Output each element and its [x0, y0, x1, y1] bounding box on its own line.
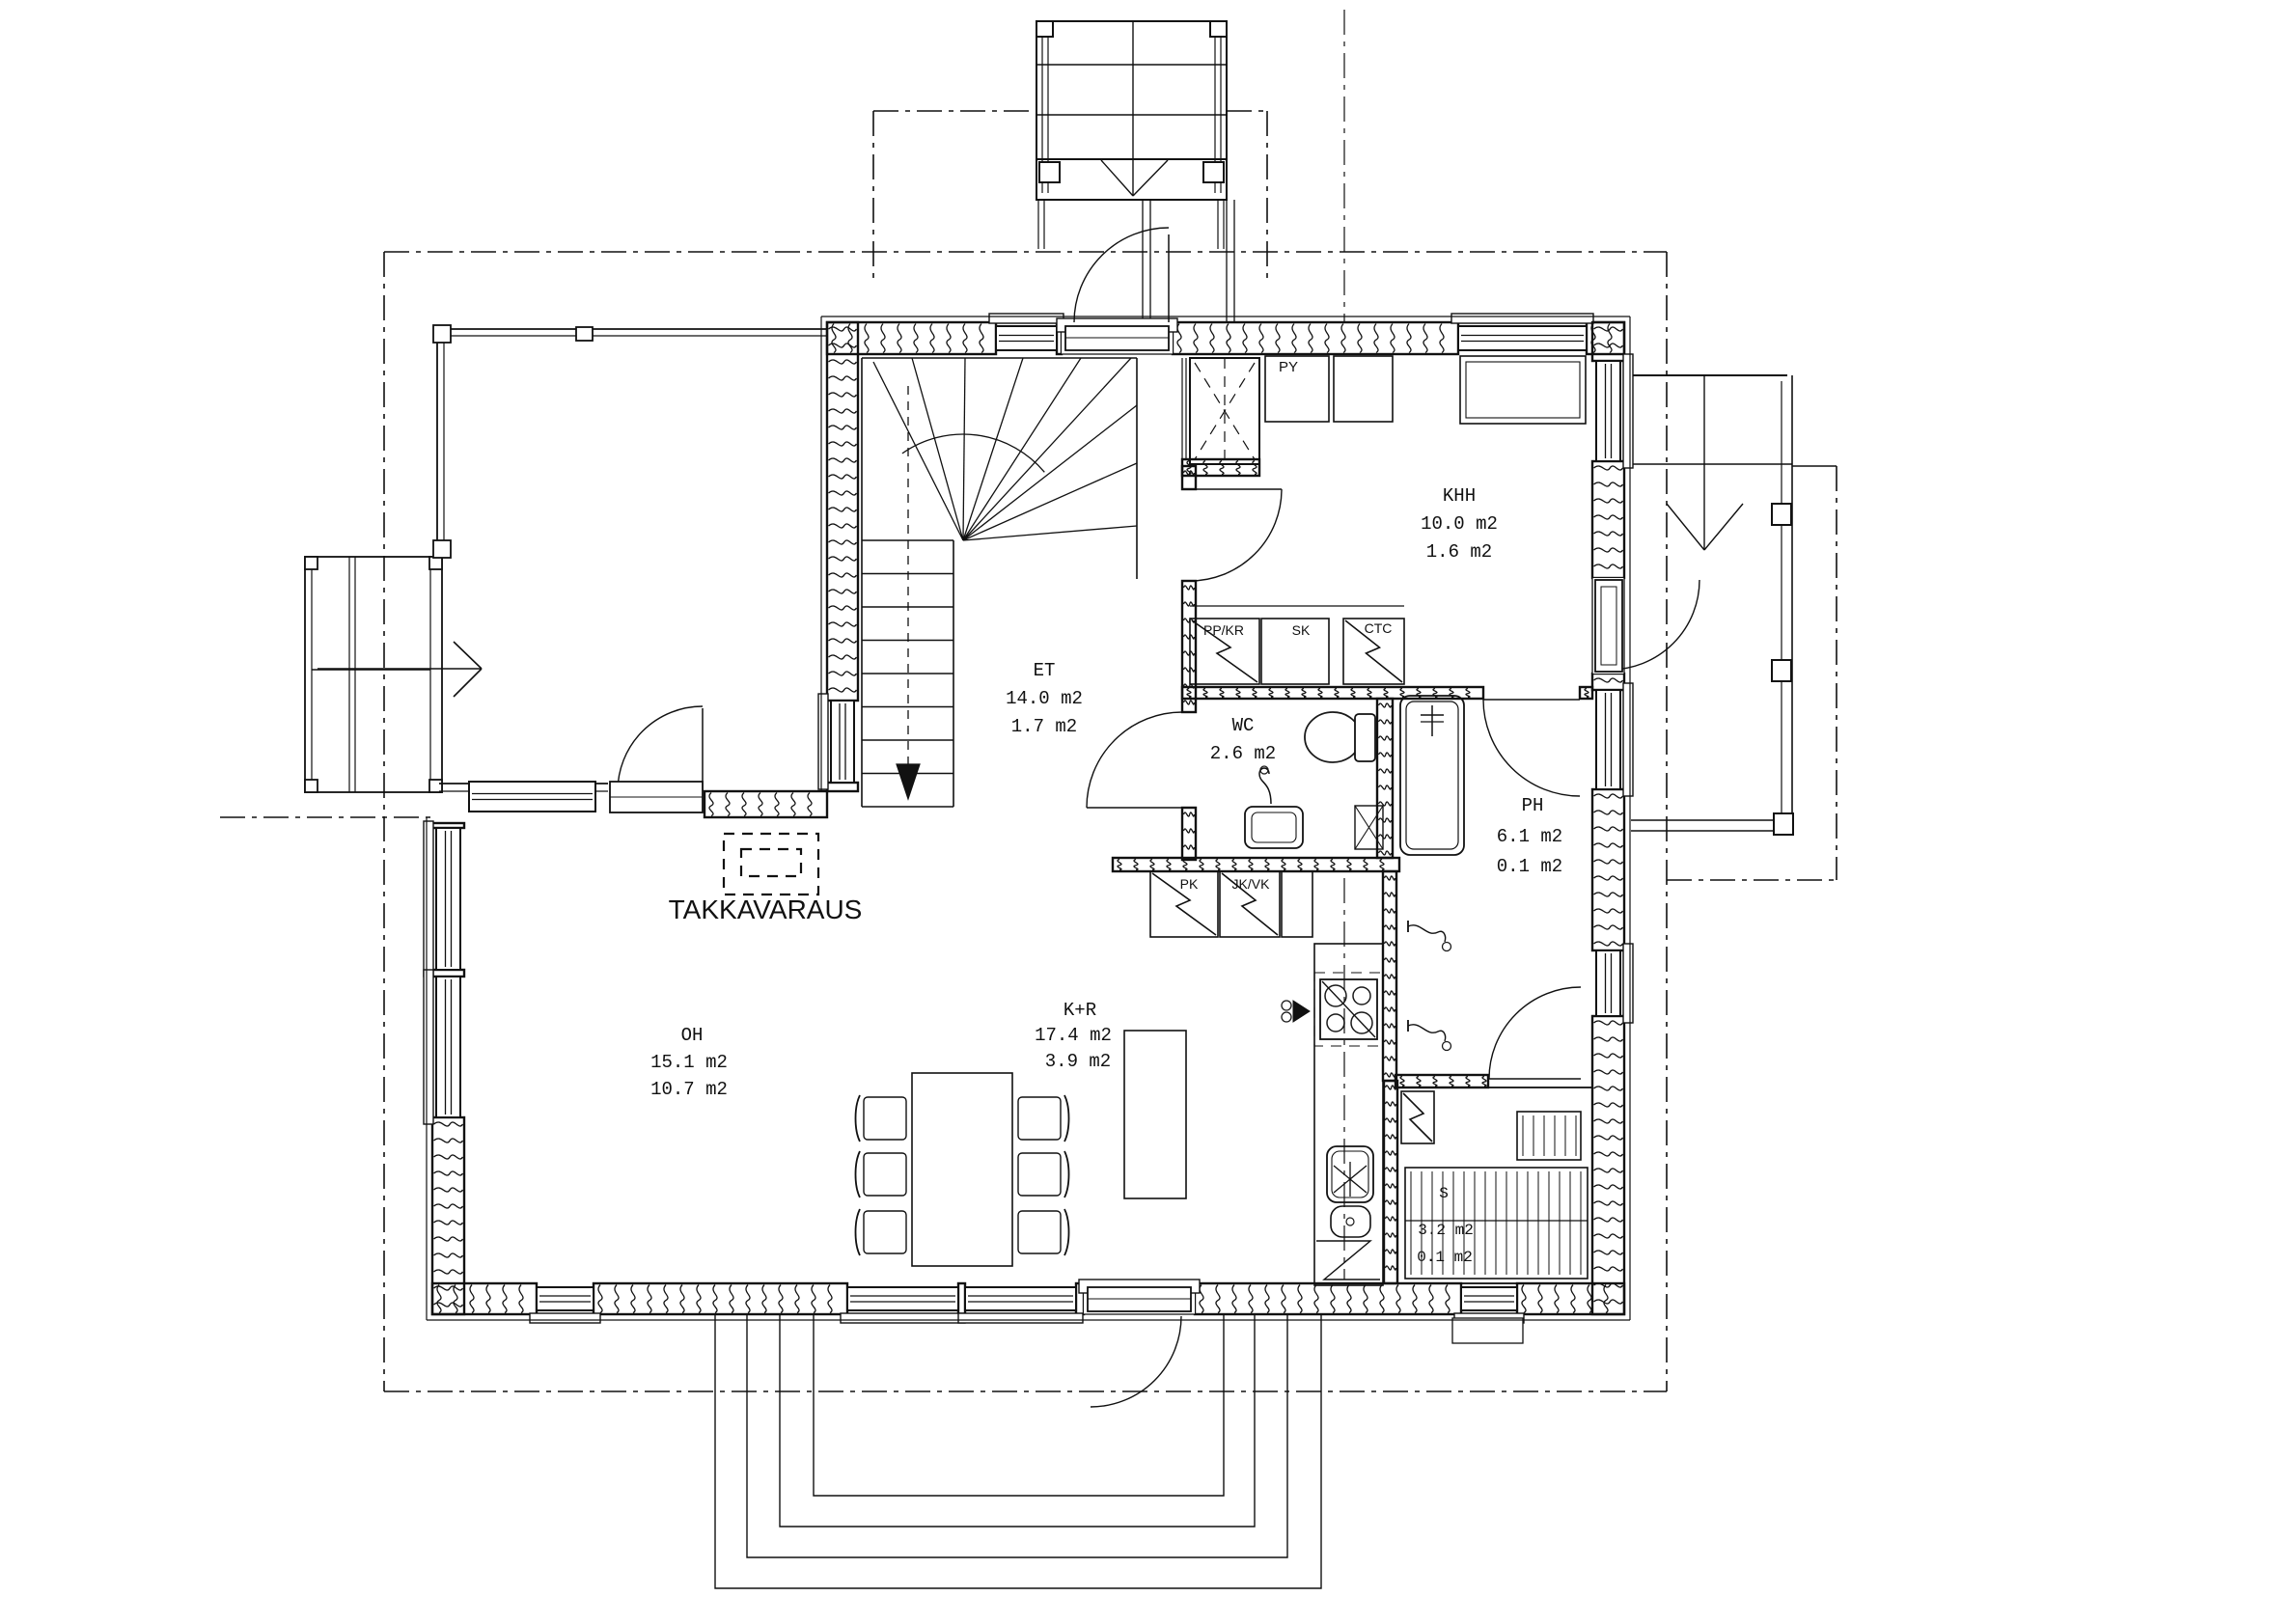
- svg-text:SK: SK: [1292, 622, 1311, 638]
- svg-text:K+R: K+R: [1064, 1000, 1096, 1021]
- svg-text:PP/KR: PP/KR: [1203, 622, 1244, 638]
- svg-text:1.7 m2: 1.7 m2: [1011, 716, 1077, 737]
- svg-text:3.9 m2: 3.9 m2: [1045, 1051, 1111, 1072]
- svg-text:KHH: KHH: [1443, 485, 1476, 507]
- svg-text:17.4 m2: 17.4 m2: [1035, 1025, 1112, 1046]
- svg-text:PH: PH: [1522, 795, 1544, 816]
- svg-text:2.6 m2: 2.6 m2: [1210, 743, 1276, 764]
- svg-text:0.1 m2: 0.1 m2: [1417, 1249, 1473, 1266]
- svg-text:JK/VK: JK/VK: [1232, 876, 1271, 892]
- svg-text:1.6 m2: 1.6 m2: [1426, 541, 1492, 563]
- svg-text:6.1 m2: 6.1 m2: [1497, 826, 1562, 847]
- svg-text:3.2 m2: 3.2 m2: [1418, 1222, 1474, 1239]
- svg-text:0.1 m2: 0.1 m2: [1497, 856, 1562, 877]
- svg-text:10.7 m2: 10.7 m2: [650, 1079, 728, 1100]
- svg-text:OH: OH: [681, 1025, 704, 1046]
- svg-text:10.0 m2: 10.0 m2: [1421, 513, 1498, 535]
- svg-text:WC: WC: [1232, 715, 1255, 736]
- svg-text:S: S: [1439, 1185, 1449, 1202]
- svg-text:TAKKAVARAUS: TAKKAVARAUS: [669, 895, 863, 924]
- svg-text:15.1 m2: 15.1 m2: [650, 1052, 728, 1073]
- svg-text:PK: PK: [1180, 876, 1199, 892]
- svg-text:ET: ET: [1034, 660, 1056, 681]
- svg-text:PY: PY: [1279, 359, 1298, 375]
- svg-text:CTC: CTC: [1365, 620, 1393, 636]
- svg-text:14.0 m2: 14.0 m2: [1006, 688, 1083, 709]
